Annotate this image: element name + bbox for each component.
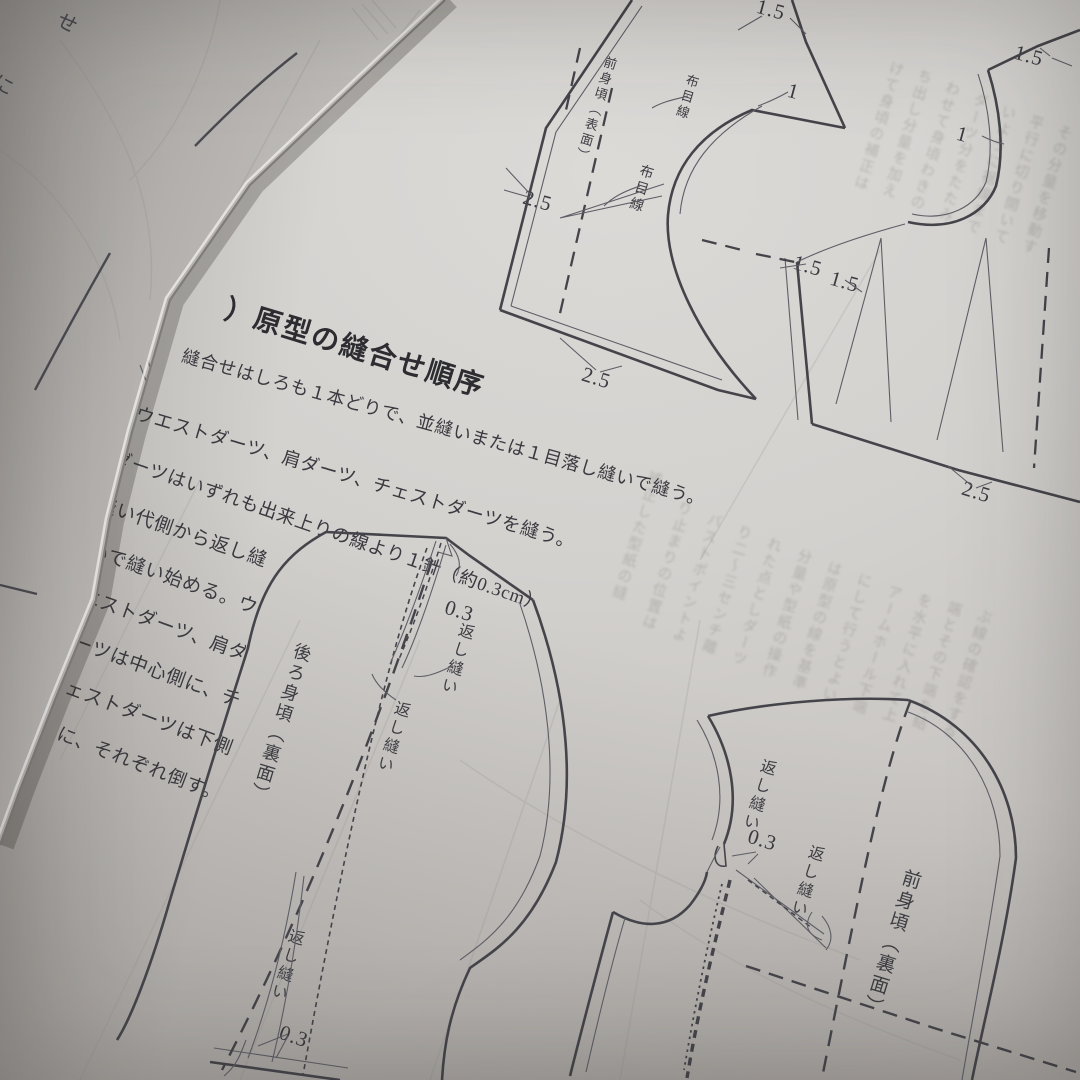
page-edge-highlight — [0, 0, 441, 843]
page-edge-shadow — [7, 2, 452, 847]
book-photo: けて身頃の補正はち出し分量を加えわせて身頃わきのダーツ分をたたみいように裾線まで… — [0, 0, 1080, 1080]
page-edge — [0, 0, 1080, 1080]
page-edge-line — [0, 0, 445, 845]
